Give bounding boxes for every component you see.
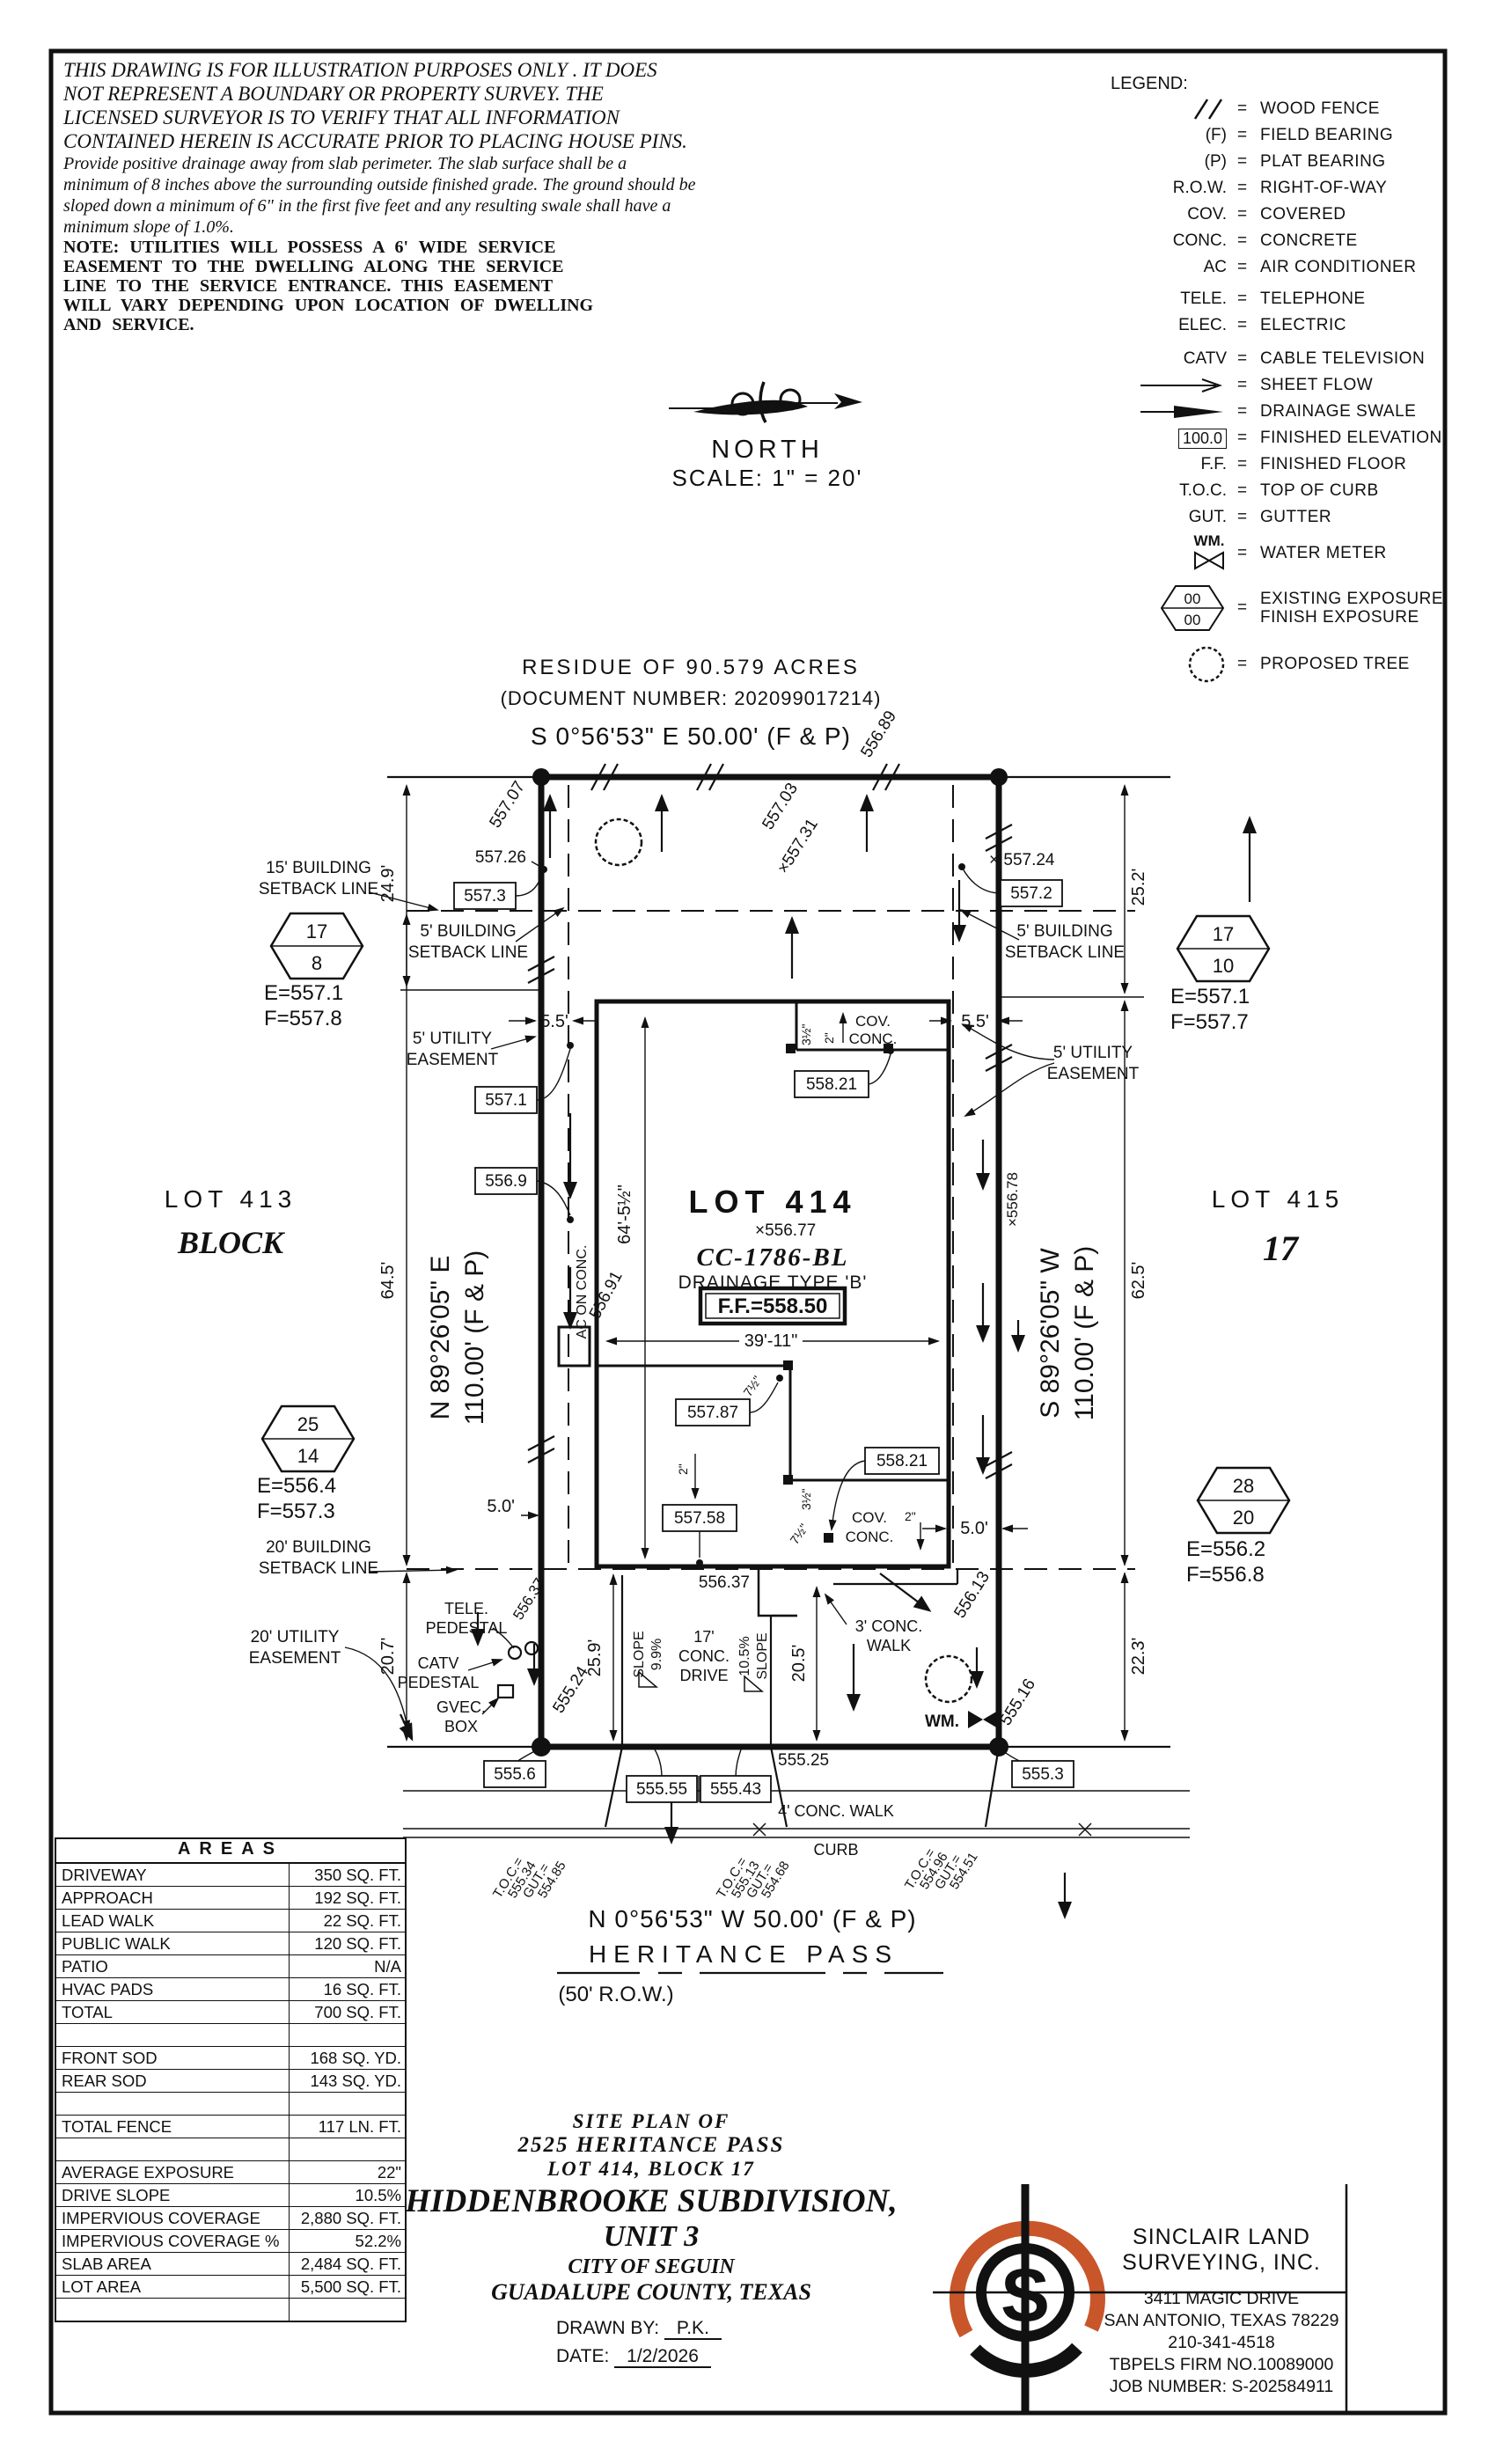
svg-text:10.5%: 10.5% [737,1636,752,1676]
svg-text:WM.: WM. [925,1712,959,1731]
svg-text:64.5': 64.5' [378,1262,398,1300]
cc-number: CC-1786-BL [696,1243,848,1272]
title-unit: UNIT 3 [387,2220,915,2254]
svg-text:EASEMENT: EASEMENT [407,1051,499,1069]
svg-text:×557.31: ×557.31 [774,816,821,877]
svg-text:20.5': 20.5' [789,1645,809,1683]
svg-text:20.7': 20.7' [378,1638,398,1676]
elev-555-6: 555.6 [494,1765,536,1784]
areas-title: AREAS [56,1839,405,1864]
svg-text:TELE.: TELE. [444,1600,488,1617]
svg-text:20' BUILDING: 20' BUILDING [266,1538,371,1557]
lot-number: LOT 414 [688,1184,856,1220]
svg-text:39'-11": 39'-11" [744,1331,798,1351]
table-row: TOTAL700 SQ. FT. [56,2001,405,2024]
bearing-west-line-2: 110.00' (F & P) [460,1250,489,1426]
svg-text:5' UTILITY: 5' UTILITY [413,1030,493,1048]
title-city: CITY OF SEGUIN [387,2255,915,2279]
svg-text:17': 17' [693,1628,714,1646]
finished-floor-box: F.F.=558.50 [700,1288,845,1324]
table-row [56,2138,405,2161]
svg-text:5.5': 5.5' [961,1012,989,1031]
svg-text:28: 28 [1233,1475,1254,1497]
svg-text:555.25: 555.25 [778,1751,829,1770]
hexagon-25-14: 25 14 E=556.4 F=557.3 [257,1406,354,1523]
table-row: PUBLIC WALK120 SQ. FT. [56,1932,405,1955]
svg-text:64'-5½": 64'-5½" [615,1184,634,1244]
legend-row-exposure: 0000 = EXISTING EXPOSUREFINISH EXPOSURE [1111,580,1438,636]
svg-text:SETBACK LINE: SETBACK LINE [259,1559,378,1578]
drawn-by-label: DRAWN BY: [556,2318,659,2338]
svg-text:E=557.1: E=557.1 [264,981,343,1005]
svg-text:E=556.4: E=556.4 [257,1474,336,1498]
svg-text:F=557.3: F=557.3 [257,1500,335,1523]
hexagon-17-10: 17 10 E=557.1 F=557.7 [1170,916,1269,1034]
table-row: DRIVEWAY350 SQ. FT. [56,1864,405,1887]
legend-row-field-bearing: (F)=FIELD BEARING [1111,122,1438,149]
svg-text:CONC.: CONC. [678,1647,730,1665]
table-row [56,2024,405,2047]
legend-row-concrete: CONC.=CONCRETE [1111,228,1438,254]
table-row: LOT AREA5,500 SQ. FT. [56,2276,405,2299]
elev-558-21: 558.21 [806,1075,857,1094]
drainage-swale-icon [1111,404,1237,420]
table-row: HVAC PADS16 SQ. FT. [56,1978,405,2001]
table-row: IMPERVIOUS COVERAGE %52.2% [56,2230,405,2253]
legend-row-plat-bearing: (P)=PLAT BEARING [1111,149,1438,175]
table-row [56,2093,405,2116]
date-label: DATE: [556,2346,609,2366]
svg-text:E=557.1: E=557.1 [1170,985,1250,1008]
proposed-tree-icon [926,1656,972,1702]
firm-phone: 210-341-4518 [1096,2332,1346,2354]
legend-title: LEGEND: [1111,74,1438,94]
title-lot-block: LOT 414, BLOCK 17 [387,2158,915,2181]
spot-elevations: 556.89 557.07 557.26 557.03 ×557.31 × 55… [475,708,1055,1770]
svg-text:2": 2" [676,1463,690,1475]
svg-text:SLOPE: SLOPE [632,1631,647,1677]
svg-text:556.91: 556.91 [586,1268,627,1322]
svg-text:556.37: 556.37 [699,1573,750,1592]
north-block: NORTH SCALE: 1" = 20' [653,377,882,492]
legend-row-proposed-tree: =PROPOSED TREE [1111,640,1438,689]
svg-text:F=557.8: F=557.8 [264,1007,342,1030]
date-value: 1/2/2026 [614,2346,711,2368]
svg-text:EASEMENT: EASEMENT [249,1649,341,1668]
residue-label: RESIDUE OF 90.579 ACRES [522,656,860,679]
svg-text:17: 17 [306,920,327,942]
street-name: HERITANCE PASS [589,1940,898,1968]
elev-557-87: 557.87 [687,1404,738,1422]
bearing-west-line-1: N 89°26'05" E [426,1256,455,1420]
elev-555-43: 555.43 [710,1780,761,1799]
svg-text:AC ON CONC.: AC ON CONC. [575,1245,590,1339]
svg-text:555.16: 555.16 [996,1676,1039,1728]
svg-text:25: 25 [297,1413,319,1435]
north-label: NORTH [653,436,882,465]
elev-557-58: 557.58 [674,1509,725,1528]
svg-text:00: 00 [1184,590,1201,607]
hexagon-28-20: 28 20 E=556.2 F=556.8 [1186,1468,1289,1587]
lot-413-label: LOT 413 [165,1185,297,1213]
svg-text:5.5': 5.5' [540,1012,568,1031]
svg-text:CURB: CURB [813,1841,858,1859]
svg-text:25.2': 25.2' [1129,869,1148,906]
svg-text:20' UTILITY: 20' UTILITY [251,1628,340,1646]
wood-fence-marks [528,764,1012,1478]
svg-text:62.5': 62.5' [1129,1262,1148,1300]
svg-text:24.9': 24.9' [378,865,398,903]
svg-text:8: 8 [312,952,322,974]
svg-text:4' CONC. WALK: 4' CONC. WALK [778,1802,894,1820]
lot-415-label: LOT 415 [1212,1185,1344,1213]
disclaimer-note: NOTE: UTILITIES WILL POSSESS A 6' WIDE S… [63,238,759,334]
svg-text:PEDESTAL: PEDESTAL [398,1674,480,1691]
areas-table: AREAS DRIVEWAY350 SQ. FT. APPROACH192 SQ… [55,1837,407,2322]
svg-text:3' CONC.: 3' CONC. [855,1617,922,1635]
svg-text:×556.78: ×556.78 [1004,1172,1021,1227]
legend-row-finished-elevation: 100.0=FINISHED ELEVATION [1111,425,1438,451]
firm-job-number: JOB NUMBER: S-202584911 [1096,2376,1346,2398]
svg-text:2": 2" [822,1032,836,1044]
table-row: REAR SOD143 SQ. YD. [56,2070,405,2093]
svg-text:E=556.2: E=556.2 [1186,1537,1265,1561]
table-row: DRIVE SLOPE10.5% [56,2184,405,2207]
site-plan-sheet: { "disclaimer": { "p1": [ "THIS DRAWING … [0,0,1496,2464]
svg-text:GVEC.: GVEC. [436,1698,486,1716]
svg-text:COV.: COV. [852,1509,887,1526]
document-number: (DOCUMENT NUMBER: 202099017214) [501,687,882,709]
table-row: PATION/A [56,1955,405,1978]
firm-address-2: SAN ANTONIO, TEXAS 78229 [1096,2310,1346,2332]
svg-text:5' BUILDING: 5' BUILDING [420,922,516,941]
svg-text:EASEMENT: EASEMENT [1047,1065,1140,1083]
hexagon-17-8: 17 8 E=557.1 F=557.8 [264,913,363,1030]
firm-block: SINCLAIR LAND SURVEYING, INC. 3411 MAGIC… [1096,2225,1346,2398]
disclaimer-paragraph-2: Provide positive drainage away from slab… [63,153,759,238]
svg-text:14: 14 [297,1445,319,1467]
legend-row-covered: COV.=COVERED [1111,202,1438,228]
exposure-hexagon-icon: 0000 [1111,583,1237,634]
table-row: TOTAL FENCE117 LN. FT. [56,2116,405,2138]
legend-row-water-meter: WM. =WATER METER [1111,531,1438,576]
north-arrow-icon [662,377,873,428]
elev-558-21b: 558.21 [876,1452,928,1470]
table-row: AVERAGE EXPOSURE22" [56,2161,405,2184]
svg-text:9.9%: 9.9% [649,1639,664,1670]
svg-text:3½": 3½" [799,1489,813,1510]
wood-fence-icon [1111,98,1237,121]
svg-text:2": 2" [905,1509,916,1523]
legend-row-finished-floor: F.F.=FINISHED FLOOR [1111,451,1438,478]
block-17-label: 17 [1263,1228,1300,1268]
bearing-east-line-2: 110.00' (F & P) [1070,1246,1099,1421]
svg-text:CONC.: CONC. [849,1030,898,1047]
svg-text:SETBACK LINE: SETBACK LINE [1005,943,1125,962]
legend-row-sheet-flow: =SHEET FLOW [1111,372,1438,399]
drawn-by-value: P.K. [664,2318,722,2340]
svg-text:556.89: 556.89 [857,708,900,760]
title-county: GUADALUPE COUNTY, TEXAS [387,2279,915,2306]
row-width-label: (50' R.O.W.) [558,1983,673,2006]
svg-text:7½": 7½" [740,1374,764,1399]
proposed-tree-icon [1111,644,1237,685]
firm-registration: TBPELS FIRM NO.10089000 [1096,2354,1346,2376]
table-row: FRONT SOD168 SQ. YD. [56,2047,405,2070]
title-block: SITE PLAN OF 2525 HERITANCE PASS LOT 414… [387,2110,915,2306]
bearing-east-line-1: S 89°26'05" W [1036,1248,1065,1419]
drainage-type: DRAINAGE TYPE 'B' [678,1272,868,1293]
svg-text:10: 10 [1213,955,1234,977]
svg-text:5.0': 5.0' [487,1497,515,1516]
svg-text:557.07: 557.07 [486,778,529,831]
svg-text:22.3': 22.3' [1129,1638,1148,1676]
svg-text:20: 20 [1233,1507,1254,1529]
svg-text:00: 00 [1184,612,1201,628]
legend: LEGEND: =WOOD FENCE (F)=FIELD BEARING (P… [1111,74,1438,689]
svg-text:×556.77: ×556.77 [755,1221,816,1240]
svg-text:557.26: 557.26 [475,848,526,867]
svg-text:F=557.7: F=557.7 [1170,1010,1249,1034]
elev-555-3: 555.3 [1022,1765,1064,1784]
legend-row-wood-fence: =WOOD FENCE [1111,96,1438,122]
svg-text:SETBACK LINE: SETBACK LINE [408,943,528,962]
disclaimer-paragraph-1: THIS DRAWING IS FOR ILLUSTRATION PURPOSE… [63,58,759,153]
legend-row-catv: CATV=CABLE TELEVISION [1111,346,1438,372]
legend-row-toc: T.O.C.=TOP OF CURB [1111,478,1438,504]
svg-text:COV.: COV. [855,1013,891,1030]
svg-text:15' BUILDING: 15' BUILDING [266,859,371,877]
svg-text:F=556.8: F=556.8 [1186,1563,1265,1587]
svg-text:557.03: 557.03 [759,780,802,832]
svg-text:5' UTILITY: 5' UTILITY [1053,1044,1133,1062]
table-row: IMPERVIOUS COVERAGE2,880 SQ. FT. [56,2207,405,2230]
table-row: SLAB AREA2,484 SQ. FT. [56,2253,405,2276]
drawn-by-block: DRAWN BY: P.K. DATE: 1/2/2026 [556,2318,847,2374]
svg-text:DRIVE: DRIVE [679,1667,728,1684]
table-row: LEAD WALK22 SQ. FT. [56,1910,405,1932]
firm-address-1: 3411 MAGIC DRIVE [1096,2288,1346,2310]
svg-text:3½": 3½" [799,1024,813,1045]
wm-label: WM. [1194,532,1225,549]
svg-text:5.0': 5.0' [960,1519,988,1538]
water-meter-icon [1192,551,1227,570]
svg-text:CATV: CATV [418,1654,459,1672]
water-meter-icon [968,1711,998,1728]
svg-text:SETBACK LINE: SETBACK LINE [259,880,378,898]
toc-gutter-labels: T.O.C.= 555.34 GUT.= 554.85 T.O.C.= 555.… [490,1845,981,1901]
svg-text:25.9': 25.9' [585,1639,605,1677]
ff-elevation: F.F.=558.50 [718,1294,828,1318]
elev-557-1: 557.1 [485,1091,527,1110]
svg-text:17: 17 [1213,923,1234,945]
svg-text:BOX: BOX [444,1718,478,1735]
disclaimer-block: THIS DRAWING IS FOR ILLUSTRATION PURPOSE… [63,58,759,334]
block-label: BLOCK [177,1225,286,1260]
legend-row-gutter: GUT.=GUTTER [1111,504,1438,531]
table-row [56,2299,405,2321]
firm-name-1: SINCLAIR LAND [1096,2225,1346,2250]
legend-row-row: R.O.W.=RIGHT-OF-WAY [1111,175,1438,202]
bearing-south-line: N 0°56'53" W 50.00' (F & P) [588,1905,916,1932]
legend-row-drainage-swale: =DRAINAGE SWALE [1111,399,1438,425]
firm-name-2: SURVEYING, INC. [1096,2250,1346,2276]
svg-text:WALK: WALK [867,1637,911,1654]
legend-row-tele: TELE.=TELEPHONE [1111,286,1438,312]
title-line: SITE PLAN OF [387,2110,915,2133]
svg-text:PEDESTAL: PEDESTAL [426,1619,508,1637]
svg-text:5' BUILDING: 5' BUILDING [1016,922,1112,941]
legend-row-ac: AC=AIR CONDITIONER [1111,254,1438,281]
svg-text:7½": 7½" [787,1522,810,1547]
title-subdivision: HIDDENBROOKE SUBDIVISION, [387,2182,915,2220]
svg-text:× 557.24: × 557.24 [989,851,1055,869]
legend-row-elec: ELEC.=ELECTRIC [1111,312,1438,339]
elev-555-55: 555.55 [636,1780,687,1799]
elev-556-9: 556.9 [485,1172,527,1191]
proposed-tree-icon [596,819,642,865]
svg-text:SLOPE: SLOPE [755,1632,770,1679]
svg-text:CONC.: CONC. [846,1529,894,1545]
elev-557-2: 557.2 [1010,884,1052,903]
table-row: APPROACH192 SQ. FT. [56,1887,405,1910]
scale-label: SCALE: 1" = 20' [653,465,882,492]
bearing-north-line: S 0°56'53" E 50.00' (F & P) [531,722,851,750]
elev-557-3: 557.3 [464,887,506,906]
title-address: 2525 HERITANCE PASS [387,2133,915,2158]
sheet-flow-icon [1111,378,1237,393]
